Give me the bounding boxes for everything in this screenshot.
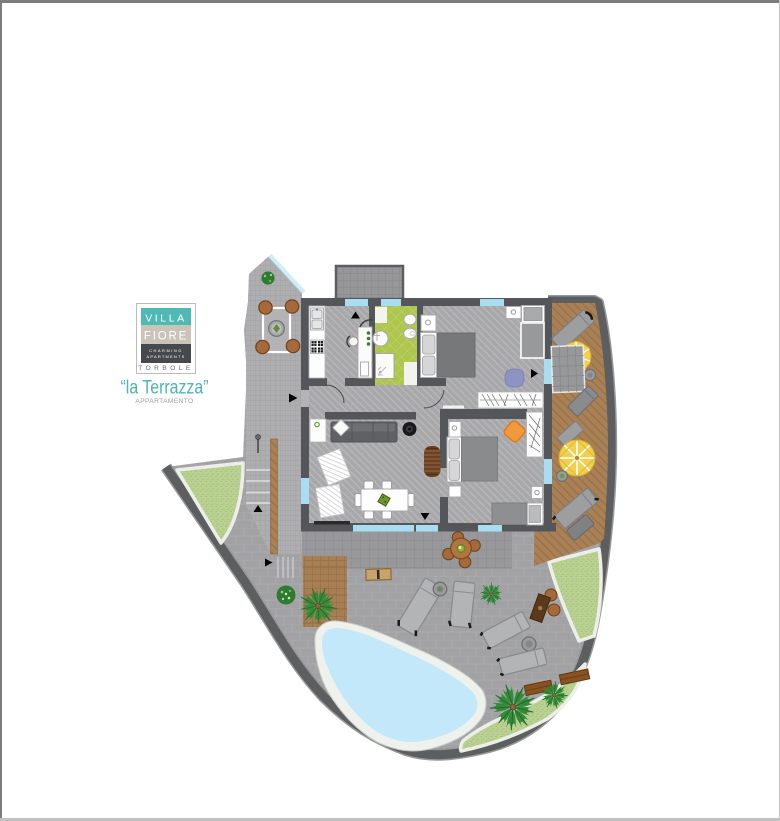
svg-text:VILLA: VILLA: [145, 313, 187, 325]
svg-text:APPARTAMENTO: APPARTAMENTO: [135, 398, 193, 405]
svg-text:APARTMENTS: APARTMENTS: [147, 354, 186, 359]
svg-text:“la Terrazza”: “la Terrazza”: [121, 378, 209, 399]
svg-text:CHARMING: CHARMING: [149, 348, 183, 353]
svg-text:TORBOLE: TORBOLE: [138, 365, 193, 372]
svg-text:FIORE: FIORE: [144, 331, 188, 343]
